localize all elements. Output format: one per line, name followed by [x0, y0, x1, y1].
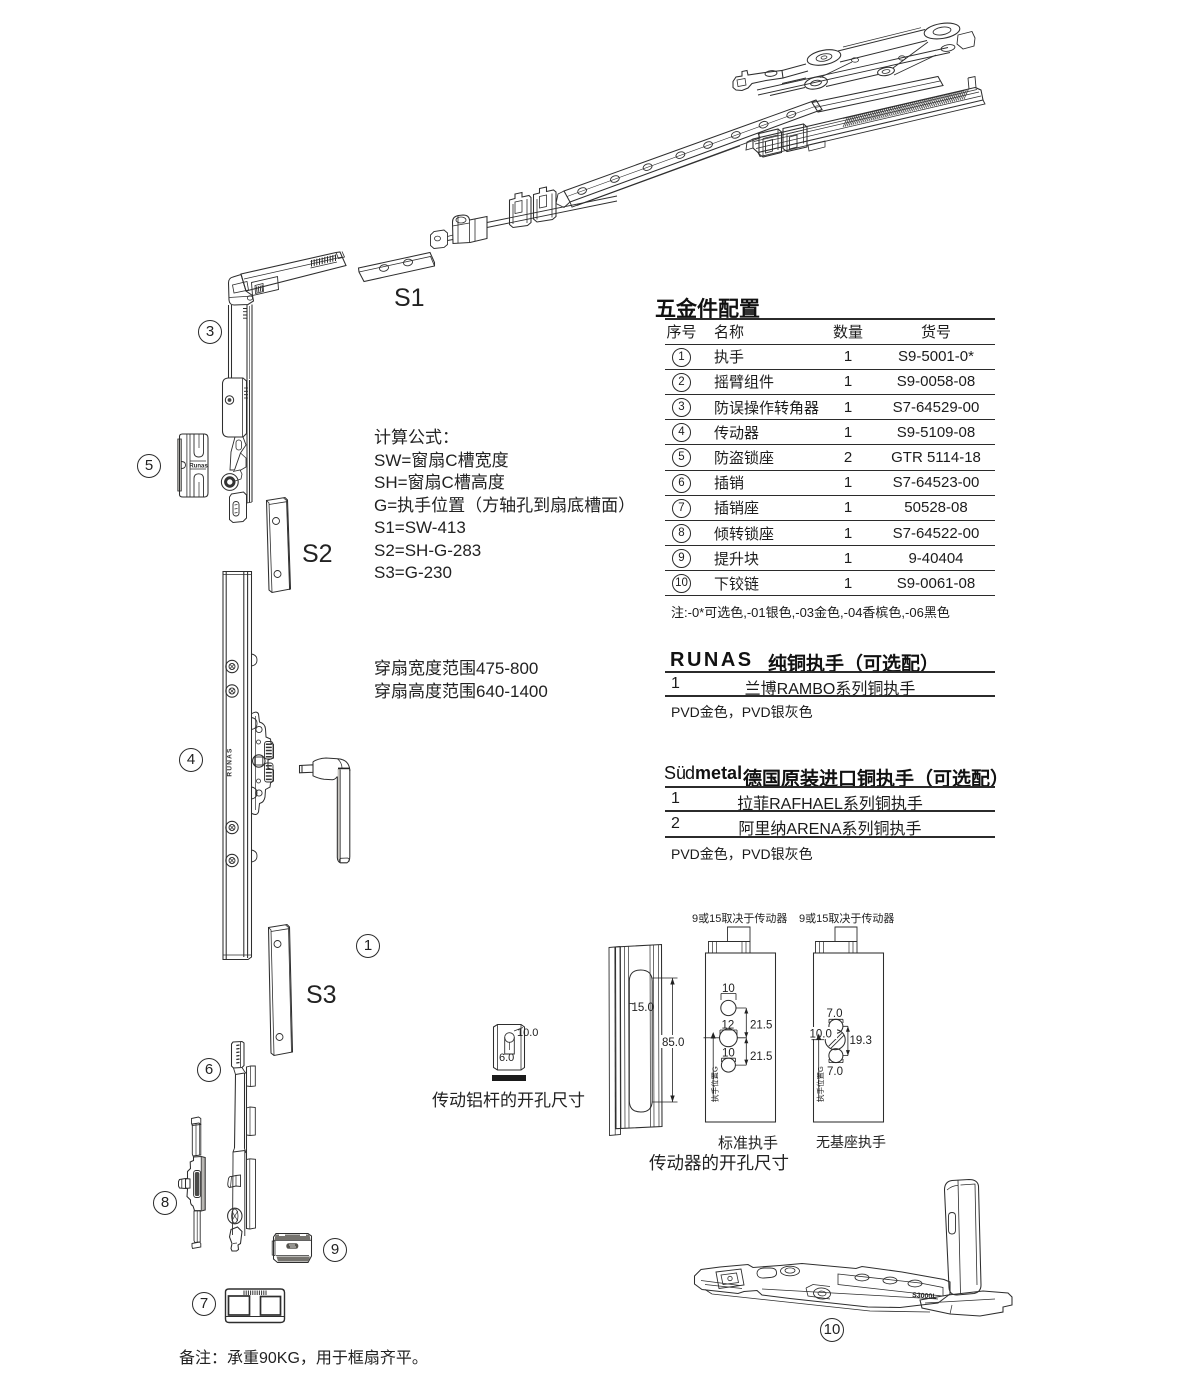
- svg-text:执手位置G: 执手位置G: [710, 1066, 720, 1102]
- svg-text:10: 10: [722, 983, 735, 995]
- svg-text:21.5: 21.5: [750, 1020, 772, 1032]
- svg-text:19.3: 19.3: [850, 1035, 872, 1047]
- svg-text:10.0: 10.0: [517, 1027, 538, 1039]
- svg-text:7.0: 7.0: [827, 1066, 843, 1078]
- svg-text:12: 12: [722, 1020, 735, 1032]
- svg-text:21.5: 21.5: [750, 1051, 772, 1063]
- svg-text:7.0: 7.0: [827, 1008, 843, 1020]
- svg-text:执手位置G: 执手位置G: [815, 1066, 825, 1102]
- svg-text:15.0: 15.0: [632, 1002, 654, 1014]
- svg-text:6.0: 6.0: [499, 1052, 514, 1064]
- svg-text:85.0: 85.0: [662, 1037, 684, 1049]
- svg-text:Runas: Runas: [189, 464, 208, 470]
- svg-text:10: 10: [722, 1048, 735, 1060]
- svg-text:RUNAS: RUNAS: [227, 747, 234, 776]
